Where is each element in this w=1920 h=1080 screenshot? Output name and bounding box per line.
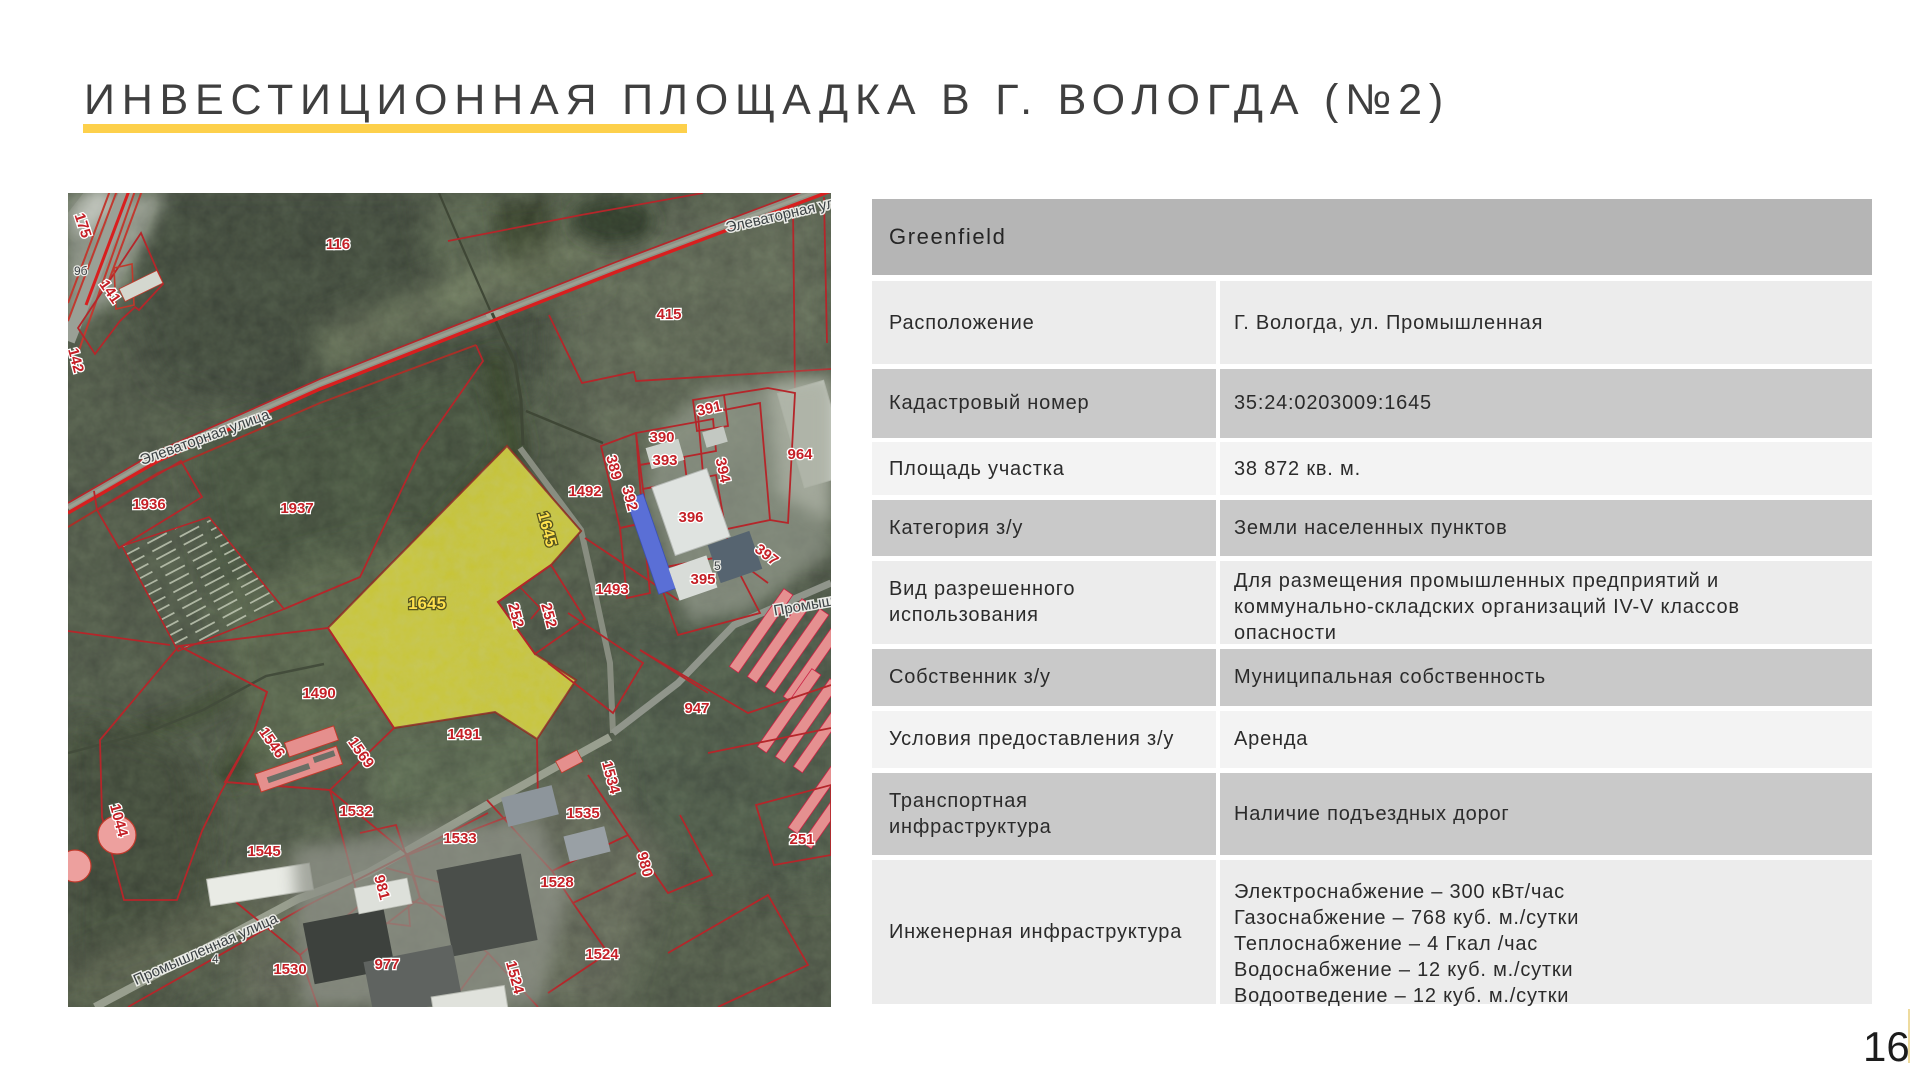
svg-text:1532: 1532 bbox=[339, 803, 372, 820]
svg-text:1533: 1533 bbox=[443, 830, 476, 847]
svg-text:9б: 9б bbox=[74, 264, 88, 278]
svg-text:395: 395 bbox=[690, 571, 715, 588]
svg-text:1645: 1645 bbox=[408, 594, 446, 613]
svg-text:4: 4 bbox=[212, 952, 219, 966]
svg-text:396: 396 bbox=[678, 509, 703, 526]
svg-text:1937: 1937 bbox=[280, 500, 313, 517]
svg-text:1524: 1524 bbox=[585, 946, 619, 963]
svg-text:1535: 1535 bbox=[566, 805, 599, 822]
svg-text:116: 116 bbox=[326, 236, 350, 253]
svg-text:415: 415 bbox=[656, 306, 681, 323]
svg-text:1490: 1490 bbox=[302, 685, 335, 702]
svg-text:977: 977 bbox=[374, 956, 399, 973]
svg-text:1530: 1530 bbox=[273, 961, 306, 978]
svg-text:1491: 1491 bbox=[447, 726, 480, 743]
svg-text:947: 947 bbox=[684, 700, 709, 717]
svg-text:251: 251 bbox=[789, 831, 814, 848]
svg-text:1493: 1493 bbox=[595, 581, 628, 598]
svg-text:1492: 1492 bbox=[568, 483, 601, 500]
svg-text:1528: 1528 bbox=[540, 874, 573, 891]
svg-text:393: 393 bbox=[652, 452, 677, 469]
svg-text:390: 390 bbox=[649, 429, 674, 446]
svg-text:1936: 1936 bbox=[132, 496, 165, 513]
svg-text:1545: 1545 bbox=[247, 843, 280, 860]
svg-text:964: 964 bbox=[787, 446, 813, 463]
